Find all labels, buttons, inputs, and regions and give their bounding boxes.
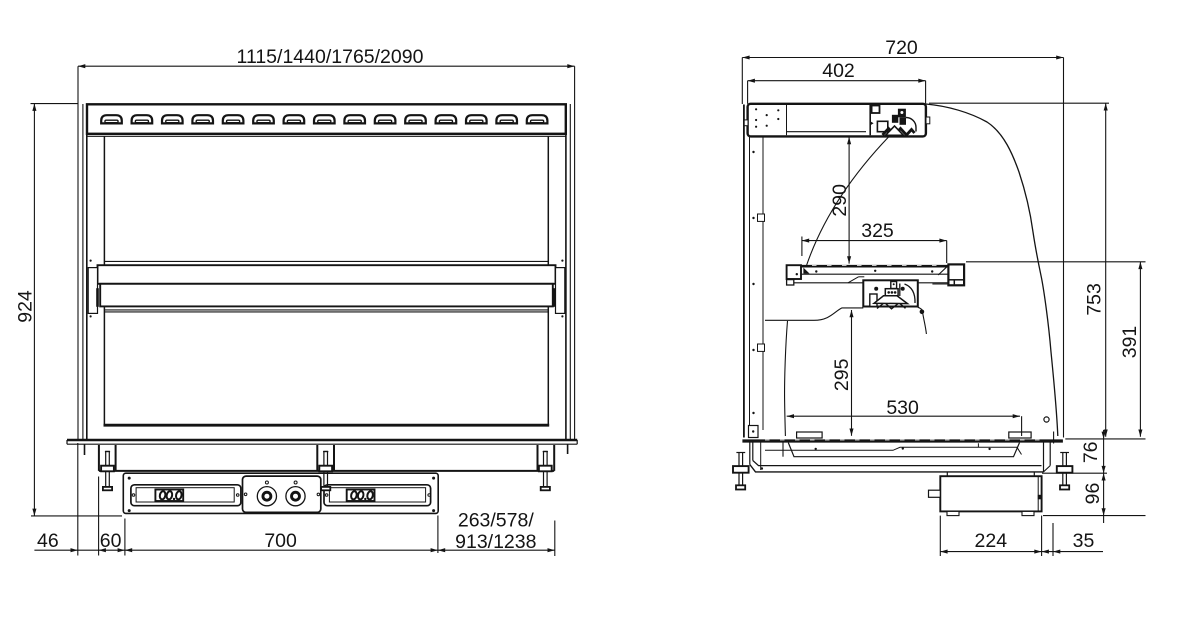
- svg-text:76: 76: [1080, 441, 1102, 463]
- svg-text:96: 96: [1082, 483, 1104, 505]
- svg-text:290: 290: [829, 184, 851, 217]
- svg-text:325: 325: [861, 220, 894, 242]
- svg-text:46: 46: [37, 530, 59, 552]
- svg-text:263/578/: 263/578/: [458, 510, 534, 532]
- svg-text:60: 60: [100, 530, 122, 552]
- svg-text:720: 720: [885, 37, 918, 59]
- svg-text:35: 35: [1073, 530, 1095, 552]
- svg-text:530: 530: [886, 397, 919, 419]
- svg-text:402: 402: [822, 60, 855, 82]
- svg-text:753: 753: [1084, 283, 1106, 316]
- svg-text:1115/1440/1765/2090: 1115/1440/1765/2090: [237, 46, 424, 68]
- svg-text:924: 924: [15, 290, 37, 323]
- svg-text:224: 224: [975, 530, 1008, 552]
- svg-text:295: 295: [831, 358, 853, 391]
- svg-text:391: 391: [1119, 326, 1141, 359]
- svg-text:913/1238: 913/1238: [455, 531, 536, 553]
- svg-text:700: 700: [264, 530, 297, 552]
